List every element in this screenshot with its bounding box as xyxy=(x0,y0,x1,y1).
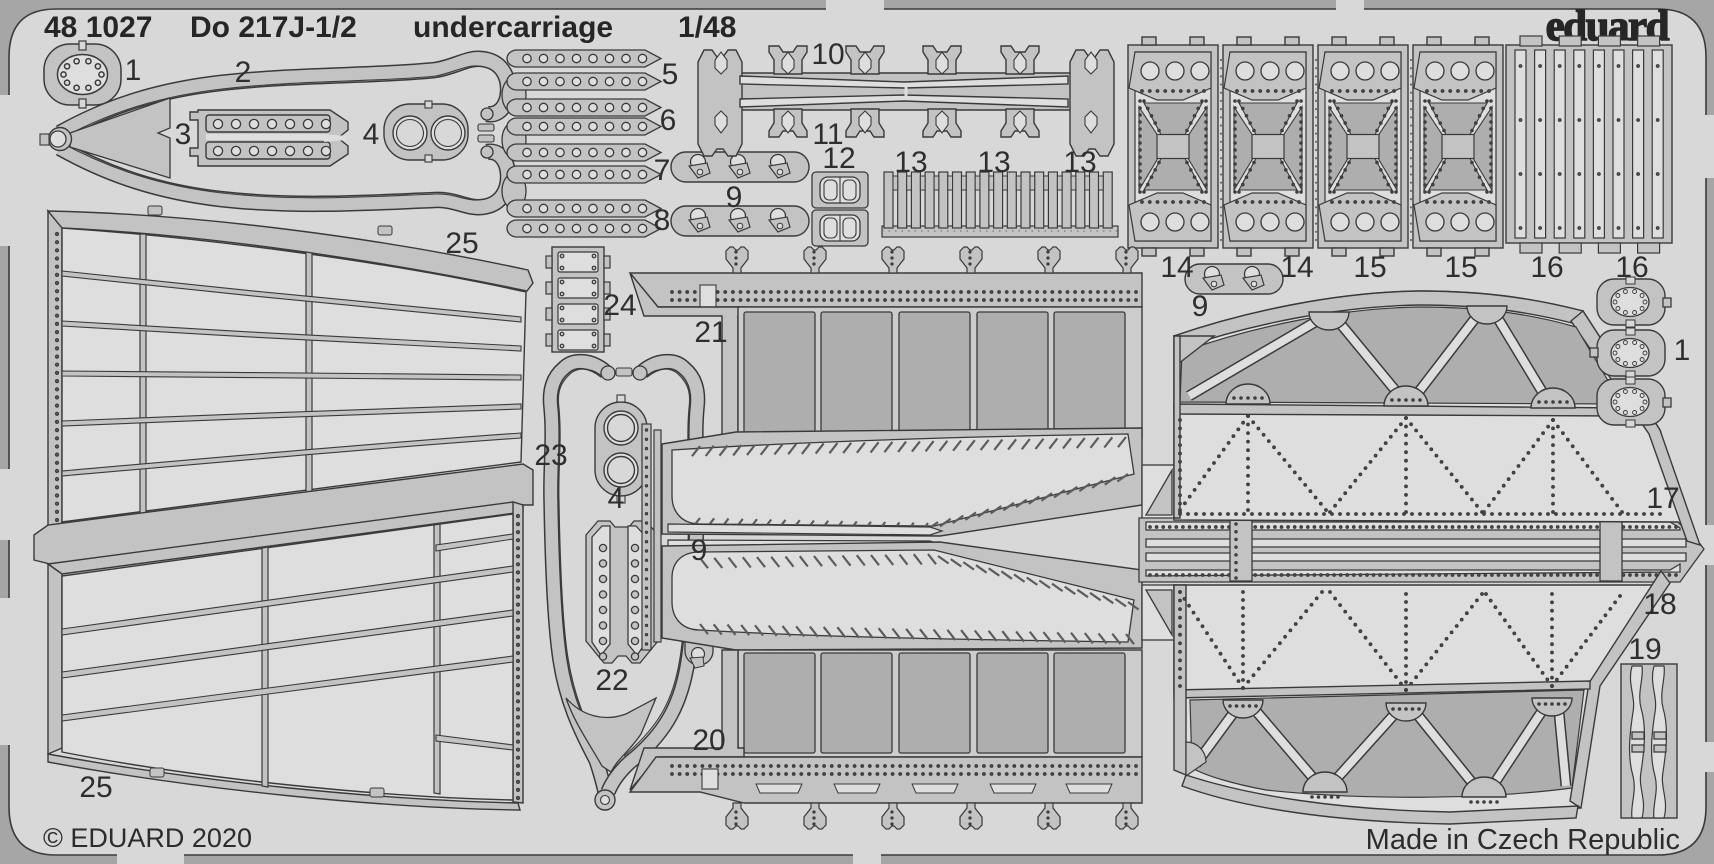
svg-text:4: 4 xyxy=(363,118,380,151)
svg-text:12: 12 xyxy=(822,142,855,175)
svg-text:25: 25 xyxy=(445,227,478,260)
svg-text:15: 15 xyxy=(1353,251,1386,284)
svg-text:2: 2 xyxy=(235,56,252,89)
svg-text:18: 18 xyxy=(1643,588,1676,621)
svg-text:Do 217J-1/2: Do 217J-1/2 xyxy=(190,11,357,44)
svg-text:undercarriage: undercarriage xyxy=(413,11,613,44)
svg-text:22: 22 xyxy=(595,664,628,697)
svg-text:13: 13 xyxy=(1063,146,1096,179)
svg-text:23: 23 xyxy=(534,439,567,472)
svg-text:9: 9 xyxy=(726,181,743,214)
svg-text:24: 24 xyxy=(603,289,636,322)
svg-text:10: 10 xyxy=(811,38,844,71)
svg-text:14: 14 xyxy=(1160,251,1193,284)
svg-text:7: 7 xyxy=(654,154,671,187)
svg-text:6: 6 xyxy=(660,104,677,137)
svg-text:13: 13 xyxy=(977,146,1010,179)
svg-text:15: 15 xyxy=(1444,251,1477,284)
svg-text:1/48: 1/48 xyxy=(678,11,736,44)
svg-text:5: 5 xyxy=(662,58,679,91)
svg-text:16: 16 xyxy=(1530,251,1563,284)
svg-text:1: 1 xyxy=(1674,334,1691,367)
svg-text:13: 13 xyxy=(894,146,927,179)
svg-text:4: 4 xyxy=(608,482,625,515)
svg-text:3: 3 xyxy=(175,118,192,151)
svg-text:Made in Czech Republic: Made in Czech Republic xyxy=(1366,824,1680,856)
svg-text:20: 20 xyxy=(692,724,725,757)
svg-text:19: 19 xyxy=(1628,633,1661,666)
svg-text:9: 9 xyxy=(691,534,708,567)
svg-text:16: 16 xyxy=(1615,251,1648,284)
svg-text:14: 14 xyxy=(1280,251,1313,284)
svg-text:1: 1 xyxy=(125,54,142,87)
svg-text:8: 8 xyxy=(654,204,671,237)
svg-text:© EDUARD 2020: © EDUARD 2020 xyxy=(43,823,252,853)
svg-text:9: 9 xyxy=(1192,290,1209,323)
svg-text:21: 21 xyxy=(694,316,727,349)
svg-text:25: 25 xyxy=(79,771,112,804)
svg-text:48 1027: 48 1027 xyxy=(44,11,152,44)
svg-text:17: 17 xyxy=(1646,482,1679,515)
